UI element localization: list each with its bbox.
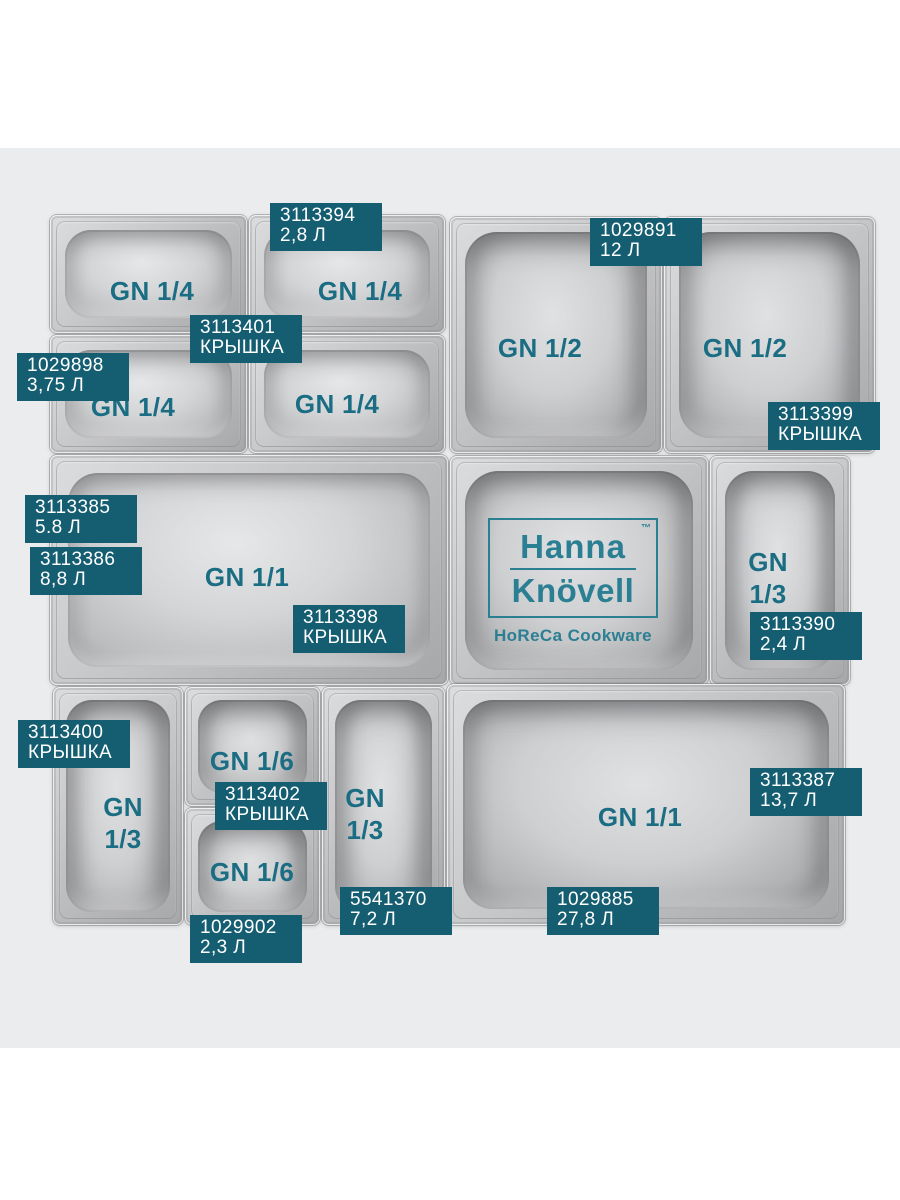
pan-caption-gn14-d: GN 1/4	[295, 388, 379, 420]
tag-size: КРЫШКА	[778, 425, 874, 445]
pan-caption-gn11-bottom: GN 1/1	[598, 801, 682, 833]
product-tag-1029898: 1029898 3,75 Л	[17, 353, 129, 401]
tag-size: 5.8 Л	[35, 518, 131, 538]
pan-caption-gn13-bottom-middle: GN 1/3	[345, 782, 385, 846]
product-tag-3113402: 3113402 КРЫШКА	[215, 782, 327, 830]
tag-size: 2,4 Л	[760, 635, 856, 655]
product-tag-5541370: 5541370 7,2 Л	[340, 887, 452, 935]
product-tag-3113385: 3113385 5.8 Л	[25, 495, 137, 543]
tag-code: 3113394	[280, 206, 376, 226]
tag-size: КРЫШКА	[28, 743, 124, 763]
tag-code: 3113402	[225, 785, 321, 805]
tag-code: 5541370	[350, 890, 446, 910]
tag-code: 3113399	[778, 405, 874, 425]
pan-caption-gn13-middle-right: GN 1/3	[748, 546, 788, 610]
tag-code: 3113400	[28, 723, 124, 743]
tag-size: 13,7 Л	[760, 791, 856, 811]
tag-size: 8,8 Л	[40, 570, 136, 590]
pan-caption-gn16-bottom: GN 1/6	[210, 856, 294, 888]
tag-size: КРЫШКА	[225, 805, 321, 825]
tag-size: 27,8 Л	[557, 910, 653, 930]
tag-code: 3113398	[303, 608, 399, 628]
brand-logo: ™ Hanna Knövell HoReCa Cookware	[488, 518, 658, 646]
product-tag-3113399: 3113399 КРЫШКА	[768, 402, 880, 450]
pan-caption-gn12-a: GN 1/2	[498, 332, 582, 364]
brand-logo-frame: ™ Hanna Knövell	[488, 518, 658, 618]
tag-code: 1029891	[600, 221, 696, 241]
pan-caption-gn11-middle: GN 1/1	[205, 561, 289, 593]
tag-size: 7,2 Л	[350, 910, 446, 930]
tag-code: 1029885	[557, 890, 653, 910]
product-tag-1029902: 1029902 2,3 Л	[190, 915, 302, 963]
product-tag-3113394: 3113394 2,8 Л	[270, 203, 382, 251]
trademark-symbol: ™	[641, 523, 651, 534]
product-tag-3113400: 3113400 КРЫШКА	[18, 720, 130, 768]
brand-name-bottom: Knövell	[494, 572, 652, 610]
tag-code: 1029898	[27, 356, 123, 376]
pan-caption-gn14-a: GN 1/4	[110, 275, 194, 307]
tag-code: 3113385	[35, 498, 131, 518]
product-tag-3113398: 3113398 КРЫШКА	[293, 605, 405, 653]
tag-size: 2,8 Л	[280, 226, 376, 246]
tag-code: 3113386	[40, 550, 136, 570]
tag-size: 12 Л	[600, 241, 696, 261]
brand-divider	[510, 568, 636, 570]
product-collage: GN 1/4 GN 1/4 GN 1/4 GN 1/4 GN 1/2 GN 1/…	[0, 0, 900, 1200]
pan-caption-gn13-bottom-left: GN 1/3	[103, 791, 143, 855]
pan-caption-gn12-b: GN 1/2	[703, 332, 787, 364]
tag-code: 1029902	[200, 918, 296, 938]
product-tag-1029891: 1029891 12 Л	[590, 218, 702, 266]
tag-code: 3113387	[760, 771, 856, 791]
tag-code: 3113401	[200, 318, 296, 338]
tag-code: 3113390	[760, 615, 856, 635]
pan-caption-gn16-top: GN 1/6	[210, 745, 294, 777]
brand-name-top: Hanna	[494, 528, 652, 566]
tag-size: 3,75 Л	[27, 376, 123, 396]
product-tag-1029885: 1029885 27,8 Л	[547, 887, 659, 935]
tag-size: КРЫШКА	[200, 338, 296, 358]
product-tag-3113387: 3113387 13,7 Л	[750, 768, 862, 816]
product-tag-3113386: 3113386 8,8 Л	[30, 547, 142, 595]
tag-size: 2,3 Л	[200, 938, 296, 958]
brand-tagline: HoReCa Cookware	[488, 626, 658, 646]
product-tag-3113401: 3113401 КРЫШКА	[190, 315, 302, 363]
tag-size: КРЫШКА	[303, 628, 399, 648]
product-tag-3113390: 3113390 2,4 Л	[750, 612, 862, 660]
pan-caption-gn14-b: GN 1/4	[318, 275, 402, 307]
